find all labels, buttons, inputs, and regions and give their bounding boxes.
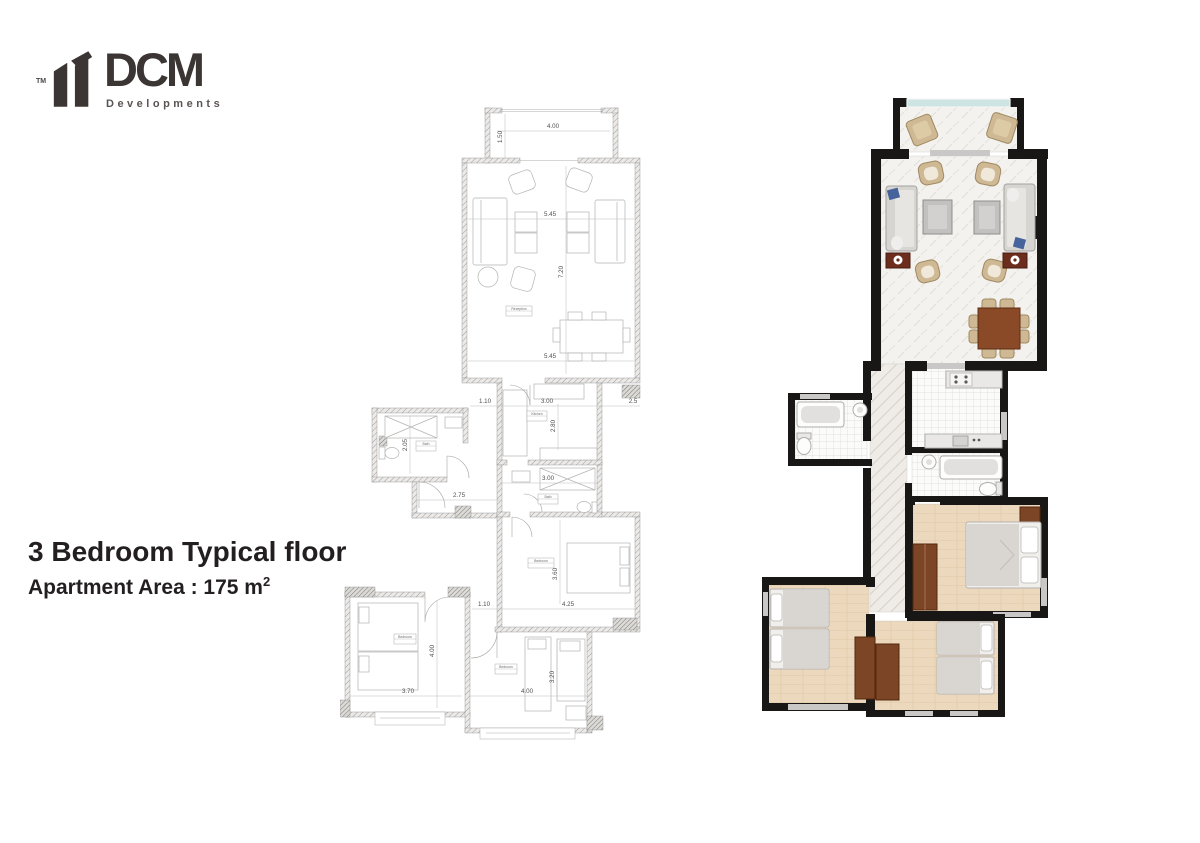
dimension-label: 4.00 [429, 644, 436, 657]
room-label: Reception [511, 307, 526, 311]
coffee-table [567, 212, 589, 232]
room-label: Bedroom [534, 559, 548, 563]
dimension-label: 3.60 [552, 567, 559, 580]
master-window [1041, 578, 1047, 606]
sink [445, 417, 462, 428]
toilet [797, 433, 811, 455]
dimension-label: 1.10 [479, 398, 492, 405]
trademark-symbol: TM [36, 78, 46, 85]
bedroom3-window2 [950, 711, 978, 716]
side-table [1003, 253, 1027, 268]
technical-floor-plan: 4.00 1.50 5.45 7.20 5.45 1.10 3.00 2.5 2… [340, 95, 655, 740]
area-value: 175 m [198, 576, 263, 599]
dimension-label: 5.45 [544, 211, 557, 218]
dining-table-set [969, 299, 1029, 358]
nightstand [1020, 507, 1040, 522]
wardrobe [566, 706, 586, 720]
dimension-label: 3.20 [549, 670, 556, 683]
balcony-window [907, 99, 1010, 107]
dimension-label: 4.25 [562, 601, 575, 608]
dining-table [553, 312, 630, 361]
dimension-label: 3.70 [402, 688, 415, 695]
twin-bed [937, 622, 994, 655]
balcony-door [930, 150, 990, 156]
kitchen-sink [953, 436, 968, 446]
sink [512, 471, 530, 482]
bathtub [940, 456, 1002, 479]
sofa [473, 198, 507, 265]
room-label: Kitchen [531, 412, 542, 416]
twin-bed [525, 637, 551, 711]
room-label: Bath [545, 495, 552, 499]
dimension-label: 5.45 [544, 353, 557, 360]
armchair [507, 168, 536, 195]
stove [950, 373, 972, 386]
double-bed [966, 522, 1041, 588]
double-bed [567, 543, 630, 593]
armchair [510, 266, 537, 293]
dimension-label: 2.75 [453, 492, 466, 499]
twin-bed [358, 652, 418, 690]
logo-wordmark: DCM [104, 46, 202, 93]
dimension-label: 1.50 [497, 130, 504, 143]
twin-bed [770, 589, 829, 627]
dimension-label: 7.20 [558, 265, 565, 278]
twin-bed [937, 657, 994, 694]
round-table [478, 267, 498, 287]
floorplan-sheet: TM DCM Developments 3 Bedroom Typical fl… [0, 0, 1200, 843]
area-superscript: 2 [263, 574, 270, 589]
bedroom2-window2 [788, 704, 848, 710]
toilet [379, 447, 399, 459]
room-label: Bedroom [398, 635, 412, 639]
dimension-label: 3.00 [541, 398, 554, 405]
area-line: Apartment Area : 175 m2 [28, 574, 346, 600]
dimension-label: 2.80 [550, 419, 557, 432]
sofa [886, 186, 917, 251]
twin-bed [557, 639, 585, 701]
wardrobe [876, 644, 899, 700]
coffee-table [923, 200, 952, 234]
dimension-label: 4.00 [521, 688, 534, 695]
dcm-logo-icon [50, 48, 96, 110]
dimension-label: 3.00 [542, 475, 555, 482]
dimension-label: 2.05 [402, 438, 409, 451]
bedroom3-window [905, 711, 933, 716]
rendered-floor-plan [755, 88, 1055, 733]
dimension-label: 1.10 [478, 601, 491, 608]
room-label: Bath [423, 442, 430, 446]
toilet [577, 502, 597, 514]
dimension-label: 4.00 [547, 123, 560, 130]
corridor-floor [870, 364, 907, 612]
armchair [564, 166, 593, 193]
side-table [886, 253, 910, 268]
kitchen-door [927, 363, 965, 369]
coffee-table [567, 233, 589, 253]
sink [853, 403, 867, 417]
sofa [595, 200, 625, 263]
wardrobe [913, 544, 937, 610]
dimension-label: 2.5 [629, 398, 638, 405]
logo-subtitle: Developments [106, 98, 223, 110]
dcm-logo: TM DCM Developments [36, 46, 266, 126]
bedroom2-window [763, 592, 768, 616]
sink [922, 455, 936, 469]
wardrobe [855, 637, 875, 699]
bath1-window [800, 394, 830, 399]
sofa [1004, 184, 1035, 251]
title-block: 3 Bedroom Typical floor Apartment Area :… [28, 536, 346, 600]
coffee-table [974, 201, 1000, 234]
coffee-table [515, 212, 537, 232]
coffee-table [515, 233, 537, 253]
room-label: Bedroom [499, 665, 513, 669]
bathtub [797, 402, 844, 427]
page-title: 3 Bedroom Typical floor [28, 536, 346, 568]
shower [385, 416, 437, 438]
twin-bed [770, 629, 829, 669]
toilet [980, 482, 1003, 496]
area-label: Apartment Area : [28, 576, 198, 599]
